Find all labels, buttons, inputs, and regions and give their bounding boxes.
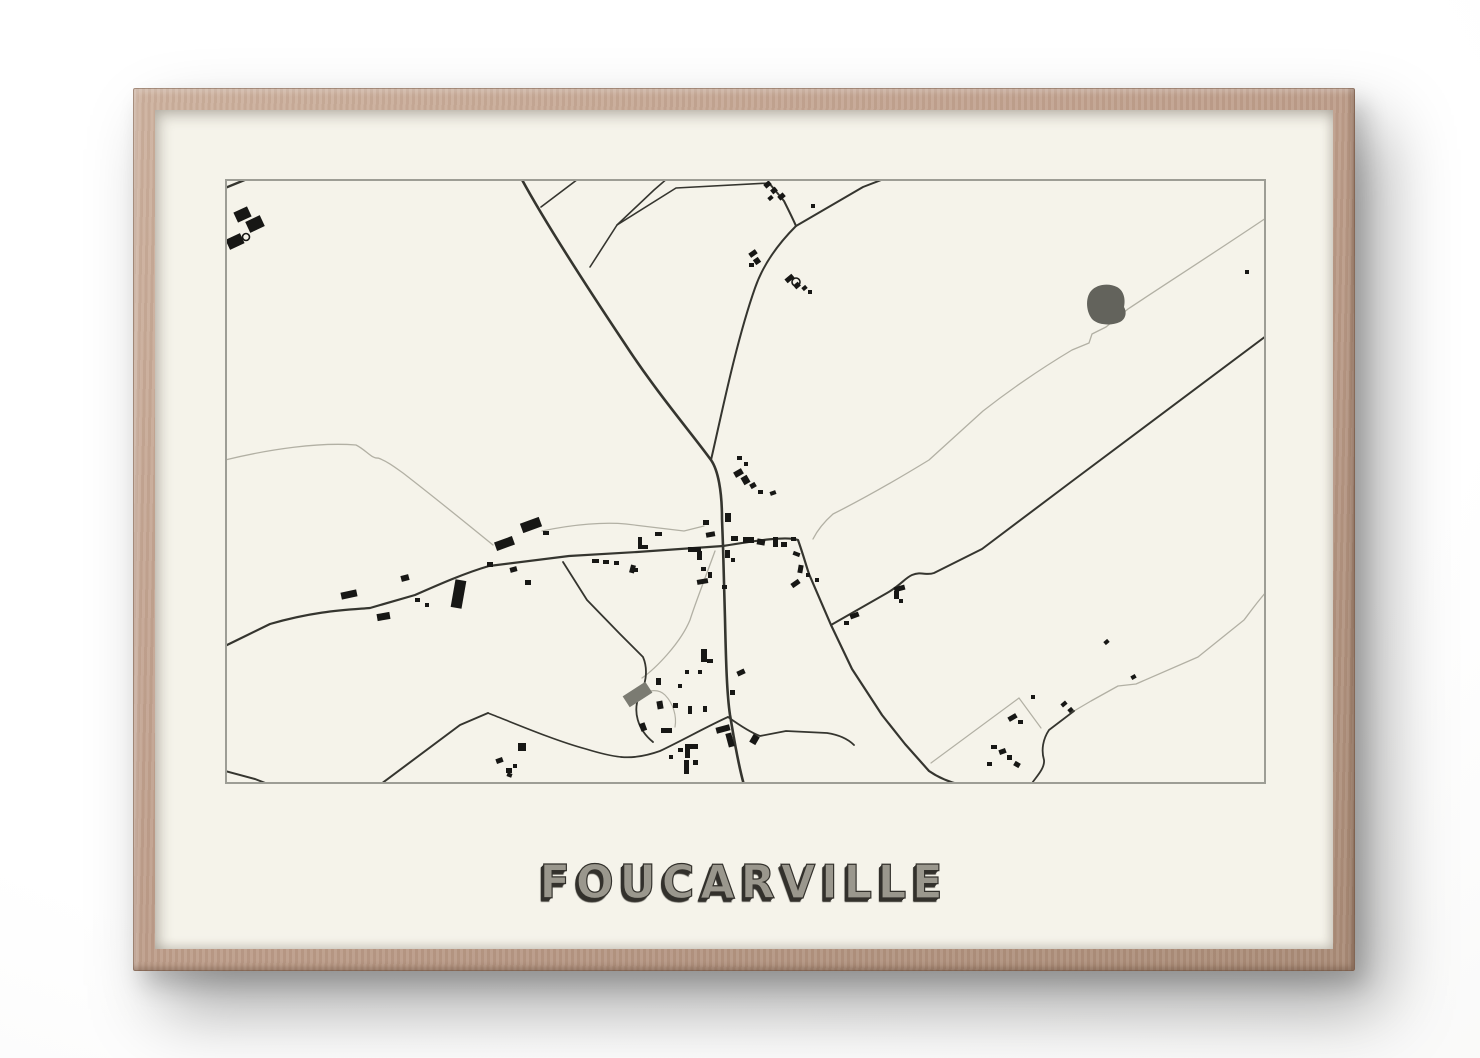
building <box>722 585 727 589</box>
wall: FOUCARVILLE <box>0 0 1480 1058</box>
road <box>1074 592 1266 711</box>
building <box>656 678 661 685</box>
building <box>543 531 549 535</box>
building <box>1130 674 1136 680</box>
building <box>518 743 526 751</box>
building <box>730 690 735 695</box>
building <box>629 564 636 573</box>
building <box>737 456 742 460</box>
building <box>1018 720 1023 724</box>
map-content <box>225 179 1266 784</box>
building <box>678 748 683 752</box>
building <box>415 598 420 602</box>
building <box>749 263 754 267</box>
road <box>590 179 669 267</box>
building <box>808 290 812 294</box>
building <box>1103 639 1109 645</box>
building <box>487 562 493 567</box>
map-figure <box>225 179 1266 784</box>
road <box>621 717 728 757</box>
building <box>701 567 706 571</box>
building <box>749 482 757 489</box>
building <box>815 578 819 582</box>
building <box>697 551 702 560</box>
building <box>669 755 673 759</box>
building <box>1007 713 1017 722</box>
road <box>931 698 1019 763</box>
building <box>693 760 698 765</box>
poster-title: FOUCARVILLE <box>173 859 1316 905</box>
road <box>813 218 1266 539</box>
pond <box>1087 285 1126 325</box>
building <box>614 561 619 565</box>
road <box>723 538 966 784</box>
building <box>1245 270 1249 274</box>
road <box>381 713 488 784</box>
building <box>525 580 531 585</box>
poster-paper: FOUCARVILLE <box>155 110 1333 949</box>
building <box>733 468 744 478</box>
building <box>763 180 772 188</box>
building <box>1007 755 1012 760</box>
ring-landmark <box>243 234 250 241</box>
building <box>685 670 689 674</box>
building <box>603 560 609 564</box>
building <box>684 760 689 774</box>
road <box>225 444 493 545</box>
building <box>706 531 716 537</box>
map-area <box>225 179 1266 784</box>
road <box>796 179 889 226</box>
building <box>740 475 750 485</box>
building <box>656 701 663 710</box>
building <box>758 490 763 494</box>
building <box>340 589 357 599</box>
building <box>685 749 690 758</box>
building <box>376 612 390 621</box>
building <box>715 724 730 733</box>
building <box>767 195 773 201</box>
building <box>506 768 512 773</box>
building <box>697 578 709 585</box>
building <box>1031 695 1035 699</box>
building <box>494 536 515 551</box>
building <box>506 772 512 777</box>
building <box>698 670 702 674</box>
building <box>233 206 251 222</box>
building <box>748 249 757 258</box>
building <box>797 565 803 574</box>
building <box>685 744 698 749</box>
road <box>728 717 854 745</box>
building <box>791 537 796 541</box>
building <box>773 537 778 547</box>
building <box>703 706 707 712</box>
building <box>769 490 776 496</box>
building <box>1013 761 1021 768</box>
building <box>495 757 503 764</box>
building <box>998 748 1006 755</box>
building <box>793 551 801 557</box>
building <box>520 517 542 533</box>
building <box>661 728 672 733</box>
building <box>655 532 662 536</box>
road <box>225 546 723 646</box>
building <box>844 621 849 625</box>
building <box>451 579 467 608</box>
building <box>425 603 429 607</box>
road <box>831 336 1266 625</box>
building <box>708 572 712 578</box>
building <box>703 520 709 525</box>
building <box>899 599 903 603</box>
building <box>781 542 787 547</box>
building <box>725 513 731 522</box>
building <box>638 545 648 549</box>
building <box>801 285 807 291</box>
building <box>753 257 761 265</box>
building <box>678 684 682 688</box>
building <box>811 204 815 208</box>
building <box>731 536 738 541</box>
building <box>987 762 992 766</box>
building <box>701 649 707 662</box>
building <box>736 669 745 677</box>
building <box>743 537 754 543</box>
road <box>488 713 621 757</box>
building <box>509 566 517 573</box>
road <box>541 179 582 207</box>
building <box>806 573 810 577</box>
building <box>731 558 735 562</box>
building <box>400 574 409 582</box>
building <box>673 703 678 708</box>
building <box>991 745 997 749</box>
road <box>542 523 704 531</box>
building <box>1060 701 1067 708</box>
building <box>592 559 599 563</box>
building <box>225 233 244 250</box>
picture-frame: FOUCARVILLE <box>133 88 1355 971</box>
building <box>513 764 517 768</box>
building <box>790 579 800 588</box>
building <box>725 550 730 558</box>
building <box>744 462 748 466</box>
building <box>688 706 692 714</box>
building <box>707 659 713 663</box>
building <box>894 591 899 599</box>
road <box>563 562 653 742</box>
building <box>639 722 647 732</box>
